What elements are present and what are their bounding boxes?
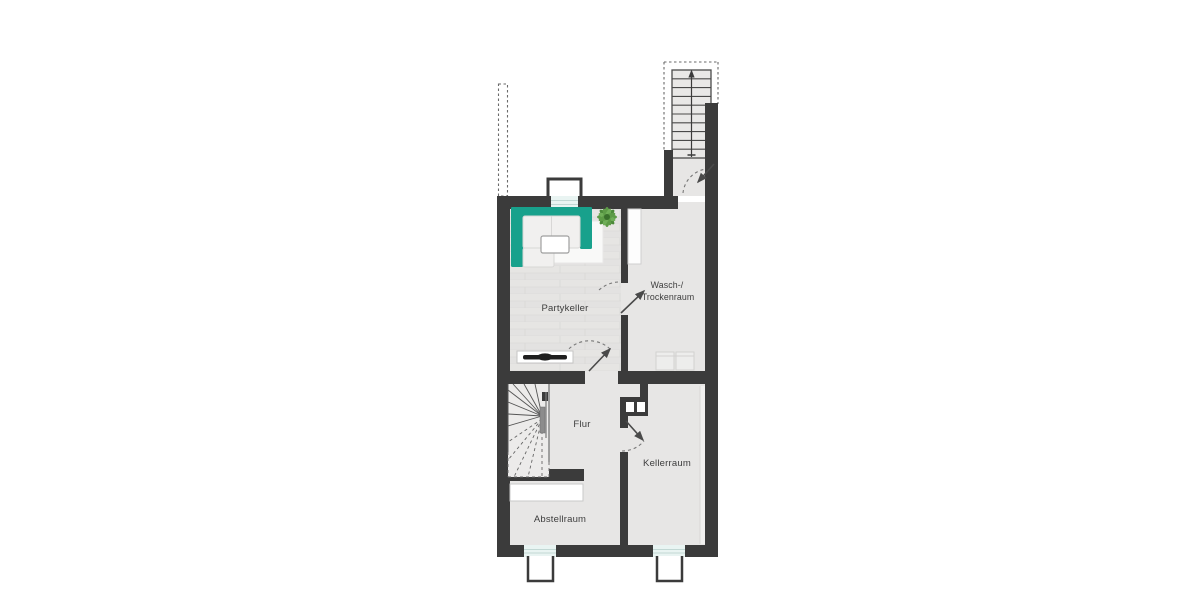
dryer xyxy=(676,352,694,370)
wall-chimney-stub xyxy=(620,412,628,428)
light-well-right xyxy=(657,556,682,581)
coffee-table xyxy=(541,236,569,253)
wall-partykeller-waschraum-lower xyxy=(621,315,628,371)
label-waschraum-line1: Wasch-/ xyxy=(651,280,684,290)
chimney-flue-right xyxy=(637,402,645,412)
tv-stand xyxy=(537,353,553,360)
window-bottom-abstellraum xyxy=(524,545,556,557)
wall-flur-kellerraum xyxy=(620,452,628,545)
stair-newel xyxy=(540,407,545,433)
wall-partykeller-waschraum-upper xyxy=(621,209,628,283)
light-well-left xyxy=(528,556,553,581)
potted-plant xyxy=(597,207,617,227)
wall-top-right xyxy=(578,196,678,209)
wall-counter xyxy=(628,209,641,264)
wall-bottom-1 xyxy=(497,545,524,557)
stair-newel-cap xyxy=(542,392,548,401)
chimney-flue-left xyxy=(626,402,634,412)
wall-middle-horizontal-right xyxy=(618,371,718,384)
wall-bottom-3 xyxy=(685,545,718,557)
washer xyxy=(656,352,674,370)
wall-chimney-connector xyxy=(640,384,648,399)
projection-strip-dashed xyxy=(499,84,508,196)
label-flur: Flur xyxy=(573,419,590,430)
label-partykeller: Partykeller xyxy=(541,303,588,314)
wall-bottom-2 xyxy=(556,545,653,557)
floorplan-basement: Partykeller Wasch-/ Trockenraum Flur Kel… xyxy=(0,0,1200,600)
label-waschraum-line2: Trockenraum xyxy=(642,292,695,302)
interior-winder-staircase xyxy=(508,384,549,477)
storage-shelf xyxy=(510,484,583,501)
sofa-arm-left xyxy=(511,207,523,267)
wall-middle-horizontal-left xyxy=(497,371,585,384)
label-kellerraum: Kellerraum xyxy=(643,458,691,469)
label-abstellraum: Abstellraum xyxy=(534,514,586,525)
sofa-arm-right xyxy=(580,207,592,249)
wall-stair-shaft-left xyxy=(664,150,673,196)
window-bottom-kellerraum xyxy=(653,545,685,557)
tv-on-sideboard xyxy=(517,351,573,363)
